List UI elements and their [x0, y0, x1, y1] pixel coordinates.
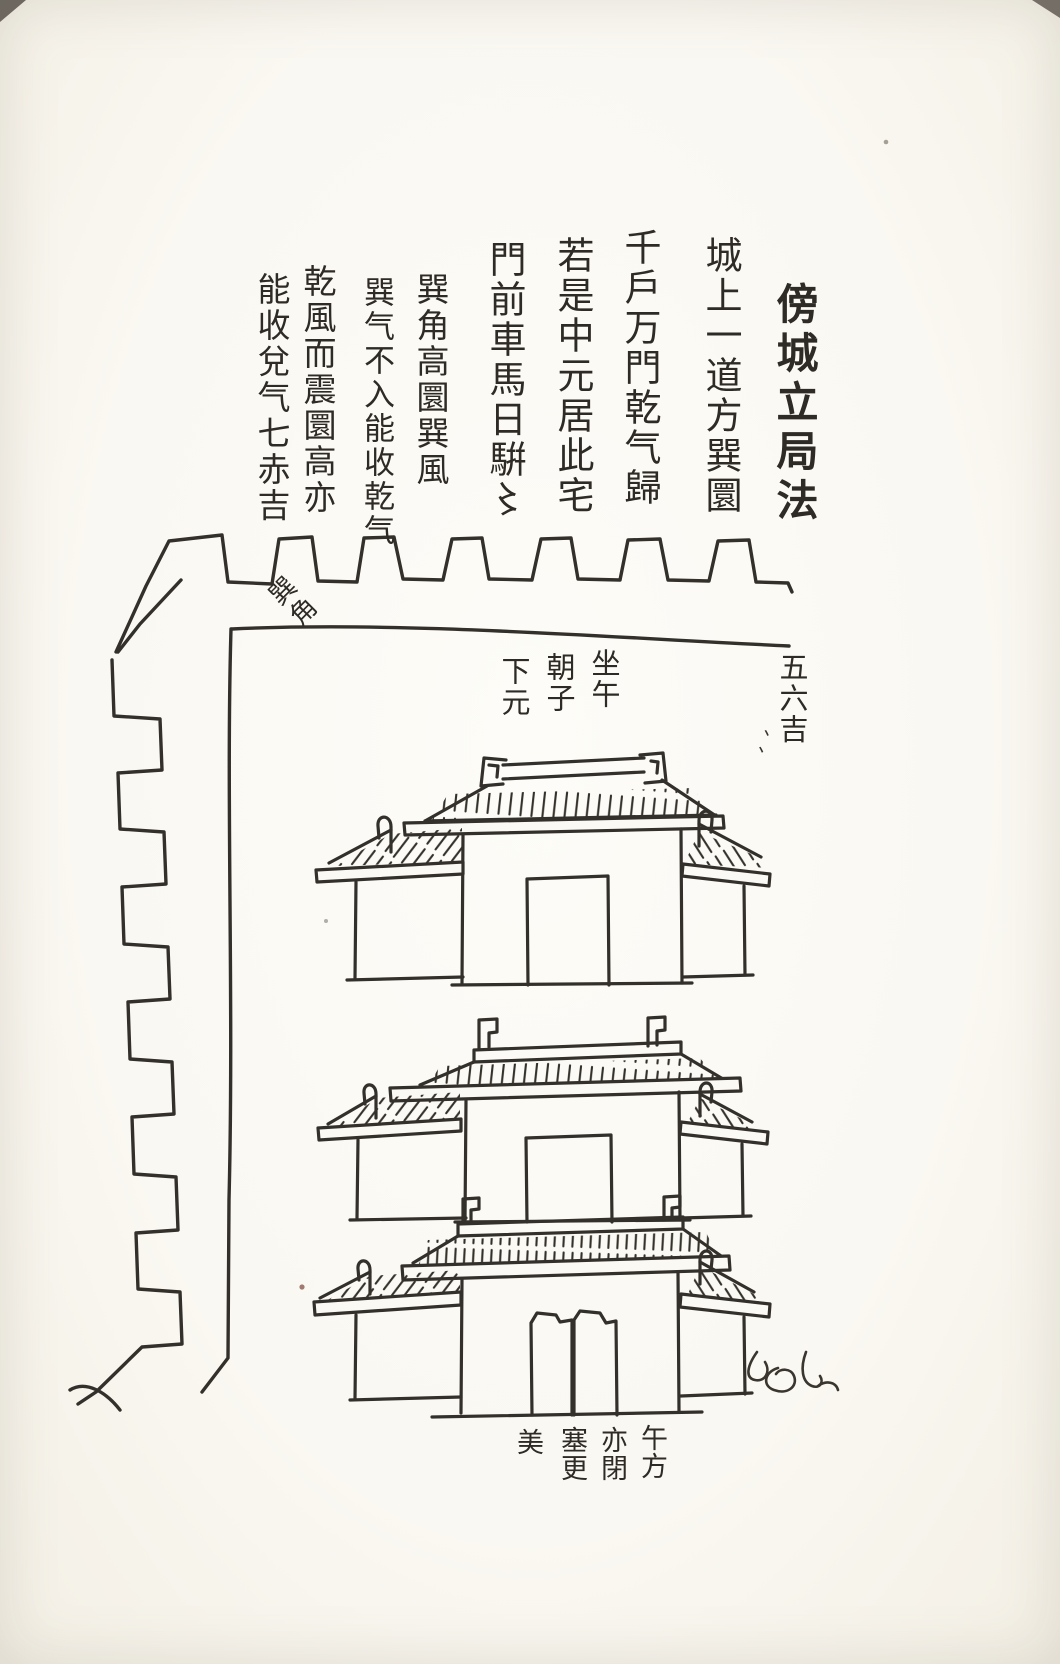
ridge-finial-left [479, 1019, 497, 1048]
wing-wall-right [744, 1317, 745, 1394]
ridge-finial-right-curl [651, 761, 658, 773]
wing-base-left [347, 977, 463, 980]
gate-tower-top [316, 753, 770, 985]
tower-wall-right [678, 1272, 679, 1411]
text-column-2: 千戶万門乾气歸 [620, 228, 657, 508]
roof-ridge [503, 758, 644, 765]
door-panel-right [574, 1311, 617, 1415]
wing-base-right [681, 1393, 752, 1396]
wing-wall-left [355, 882, 356, 978]
wing-wall-left [355, 1315, 356, 1398]
wing-wall-right [744, 886, 745, 975]
right-note-wuliuji: 五六吉 [776, 652, 805, 745]
tower-wall-left [462, 835, 463, 983]
text-column-1: 城上一道方巽圜 [701, 236, 738, 516]
wing-roof-hatching [333, 828, 462, 866]
roof-ridge [503, 772, 644, 779]
wing-base-left [350, 1218, 466, 1220]
city-wall-top-battlements [116, 535, 792, 652]
gate-tower-bottom [314, 1196, 770, 1417]
wing-base-left [350, 1397, 461, 1400]
bottom-note-wufang: 午方 [638, 1424, 665, 1480]
text-column-3: 若是中元居此宅 [553, 236, 590, 516]
text-column-5: 巽角高圜巽風 [412, 272, 445, 488]
tower-base [432, 1412, 702, 1417]
scan-corner-artifact-left [0, 0, 26, 22]
ink-speck [299, 1284, 304, 1289]
gate-doorway [527, 876, 609, 985]
wing-base-right [681, 1216, 751, 1218]
wing-wall-right [742, 1144, 743, 1216]
page-title: 傍城立局法 [772, 282, 814, 527]
tower-base [452, 983, 692, 985]
ridge-finial-left [481, 758, 506, 786]
line-drawing [0, 0, 1060, 1664]
text-column-4: 門前車馬日騈〻 [485, 240, 522, 520]
ink-speck [884, 140, 889, 145]
orientation-label-zuowu: 坐午 [588, 648, 617, 710]
scan-corner-artifact-right [1032, 0, 1060, 18]
orientation-label-xiayuan: 下元 [498, 656, 527, 718]
tower-wall-right [681, 829, 682, 983]
orientation-label-chaozi: 朝子 [543, 652, 572, 714]
city-wall-left-battlements [70, 629, 231, 1410]
ridge-finial-left-curl [489, 765, 498, 777]
tower-wall-left [465, 1101, 466, 1220]
roof-ridge [474, 1042, 681, 1062]
wing-base-right [683, 975, 753, 977]
text-column-6: 巽气不入能收乾气 [361, 276, 392, 548]
gate-tower-middle [318, 1017, 768, 1222]
wing-eave-left [318, 1119, 461, 1140]
text-column-8: 能收兌气七赤吉 [253, 272, 286, 524]
bottom-note-yibi: 亦閉 [598, 1426, 625, 1482]
text-column-7: 乾風而震圜高亦 [299, 264, 332, 516]
wing-eave-right [680, 1294, 770, 1317]
cursive-mark [748, 1352, 838, 1391]
ink-speck [324, 919, 328, 923]
gate-doorway [526, 1135, 612, 1222]
bottom-note-mei: 美 [514, 1428, 541, 1456]
bottom-note-saigeng: 塞更 [558, 1426, 585, 1482]
wing-wall-left [357, 1140, 358, 1218]
door-panel-left [531, 1313, 572, 1415]
scanned-manuscript-page: 傍城立局法 城上一道方巽圜 千戶万門乾气歸 若是中元居此宅 門前車馬日騈〻 巽角… [0, 0, 1060, 1664]
